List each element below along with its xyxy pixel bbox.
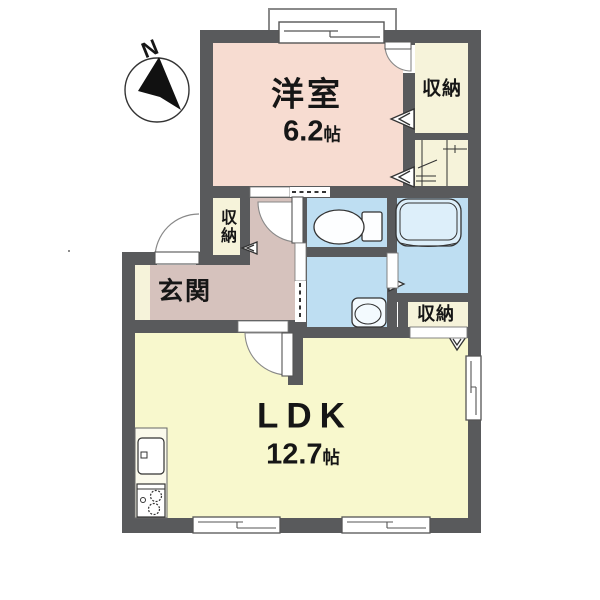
wall [295, 186, 307, 338]
wall [295, 327, 468, 338]
room-entrance-step [135, 265, 150, 320]
area-value: 6.2 [283, 116, 323, 148]
room-label-entrance: 玄関 [158, 280, 212, 305]
wall [307, 247, 387, 257]
wall [387, 186, 397, 327]
wall [122, 252, 135, 533]
room-bath [397, 198, 468, 293]
compass-north-arrow [125, 57, 189, 122]
area-unit: 帖 [323, 125, 340, 145]
room-size-ldk: 12.7帖 [266, 441, 340, 470]
room-label-storage-top-right: 収納 [422, 80, 462, 99]
room-label-western: 洋室 [271, 78, 343, 111]
room-western [213, 43, 403, 186]
wall [468, 30, 481, 533]
compass-n-label: N [139, 36, 162, 62]
wall [213, 186, 468, 198]
room-label-storage-hall: 収納 [218, 209, 234, 245]
wall [196, 252, 213, 265]
wall [122, 320, 307, 333]
room-size-western: 6.2帖 [283, 118, 341, 147]
room-label-ldk: LDK [257, 399, 353, 434]
wall [200, 43, 213, 265]
room-label-storage-bottom-right: 収納 [417, 305, 455, 323]
wall [200, 30, 481, 43]
wall [122, 518, 481, 533]
area-unit: 帖 [323, 448, 340, 468]
door-arc-entrance [155, 214, 199, 264]
wall [240, 186, 250, 265]
area-value: 12.7 [266, 439, 322, 471]
room-toilet [307, 198, 387, 247]
wall [288, 333, 303, 385]
floor-plan: N 洋室 6.2帖 収納 収納 玄関 収納 LDK 12.7帖 [0, 0, 600, 600]
room-shelf-closet [415, 140, 468, 186]
print-speck [68, 250, 70, 252]
room-washroom [307, 257, 387, 327]
wall [403, 43, 415, 186]
wall [415, 133, 468, 140]
